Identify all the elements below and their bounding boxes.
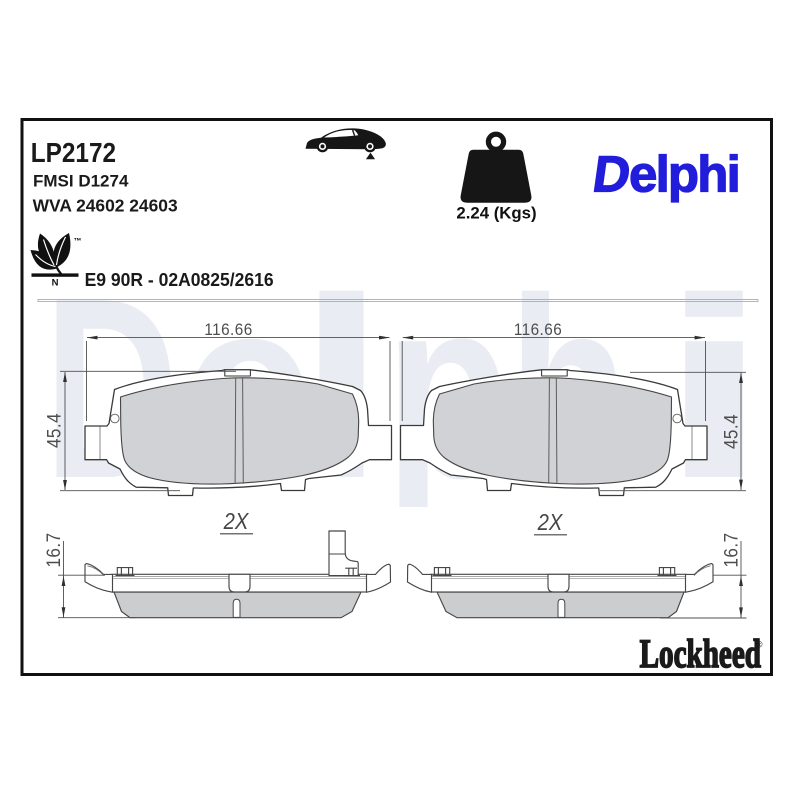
svg-text:E9 90R - 02A0825/2616: E9 90R - 02A0825/2616 bbox=[85, 270, 274, 291]
svg-text:LP2172: LP2172 bbox=[31, 137, 116, 169]
svg-text:2X: 2X bbox=[223, 508, 250, 535]
svg-text:2.24 (Kgs): 2.24 (Kgs) bbox=[456, 204, 536, 223]
svg-text:2X: 2X bbox=[537, 509, 564, 536]
svg-text:116.66: 116.66 bbox=[204, 320, 252, 339]
svg-text:45.4: 45.4 bbox=[43, 413, 64, 448]
svg-text:16.7: 16.7 bbox=[43, 532, 64, 567]
svg-text:™: ™ bbox=[74, 237, 82, 246]
svg-text:D: D bbox=[589, 146, 634, 203]
svg-text:45.4: 45.4 bbox=[720, 414, 741, 449]
svg-text:N: N bbox=[52, 278, 59, 289]
svg-text:®: ® bbox=[756, 640, 763, 651]
svg-text:elphi: elphi bbox=[629, 146, 739, 203]
svg-text:116.66: 116.66 bbox=[514, 320, 562, 339]
svg-text:16.7: 16.7 bbox=[720, 532, 741, 567]
svg-text:FMSI D1274: FMSI D1274 bbox=[33, 172, 129, 191]
svg-text:Lockheed: Lockheed bbox=[640, 631, 762, 676]
svg-text:WVA 24602 24603: WVA 24602 24603 bbox=[33, 195, 178, 215]
